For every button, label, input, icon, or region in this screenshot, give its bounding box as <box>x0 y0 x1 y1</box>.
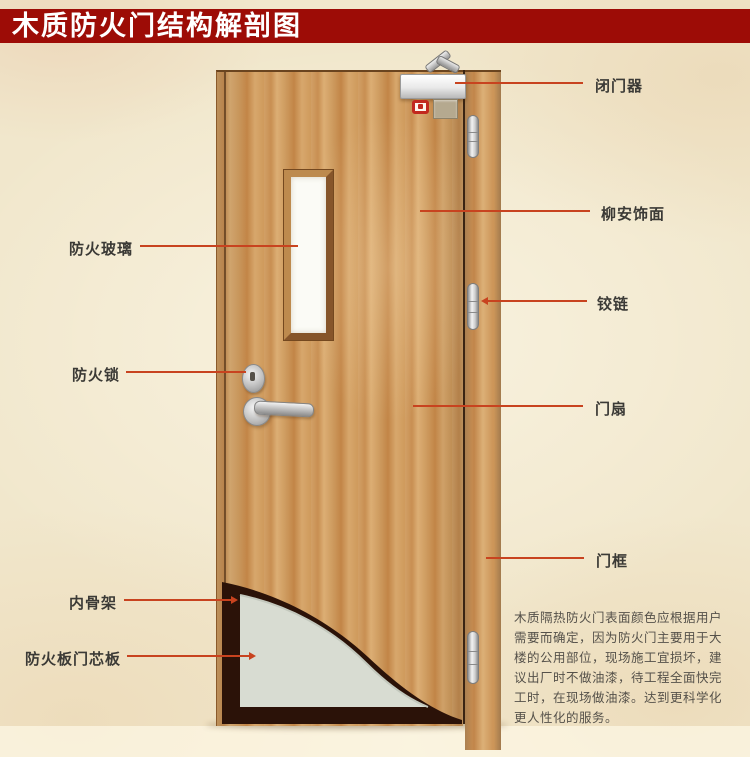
label-door-closer: 闭门器 <box>595 75 643 96</box>
arrow-icon <box>481 297 488 305</box>
hinge-bottom <box>467 631 479 684</box>
leader-line-hinge <box>488 300 587 302</box>
paragraph-line: 工时，在现场做油漆。达到更科学化 <box>514 688 732 708</box>
leader-line-inner-skeleton <box>124 599 232 601</box>
label-core-board: 防火板门芯板 <box>25 648 121 669</box>
hinge-middle <box>467 283 479 330</box>
arrow-icon <box>249 652 256 660</box>
label-door-frame: 门框 <box>596 550 628 571</box>
leader-line-door-closer <box>455 82 583 84</box>
alarm-indicator-dot <box>418 104 423 109</box>
keyhole <box>250 372 255 381</box>
paragraph-line: 需要而确定，因为防火门主要用于大 <box>514 628 732 648</box>
label-fire-glass: 防火玻璃 <box>69 238 133 259</box>
leader-line-veneer <box>420 210 590 212</box>
page-title: 木质防火门结构解剖图 <box>12 9 302 43</box>
leader-line-core-board <box>127 655 250 657</box>
label-door-leaf: 门扇 <box>595 398 627 419</box>
label-fire-lock: 防火锁 <box>72 364 120 385</box>
leader-line-fire-glass <box>140 245 298 247</box>
label-veneer: 柳安饰面 <box>601 203 665 224</box>
infographic-canvas: 木质防火门结构解剖图 防火玻璃 防火锁 内骨架 防火板门芯板 闭门器 柳安饰面 <box>0 0 750 757</box>
door-closer-body <box>400 74 466 99</box>
arrow-icon <box>231 596 238 604</box>
paragraph-line: 木质隔热防火门表面颜色应根据用户 <box>514 608 732 628</box>
leader-line-door-frame <box>486 557 584 559</box>
fire-glass-window <box>284 170 333 340</box>
paragraph-line: 更人性化的服务。 <box>514 708 732 728</box>
leader-line-fire-lock <box>126 371 246 373</box>
cutaway-section <box>216 575 462 724</box>
floor-band <box>0 726 750 757</box>
label-hinge: 铰链 <box>597 293 629 314</box>
mounting-plate <box>433 99 458 119</box>
paragraph-line: 议出厂时不做油漆，待工程全面快完 <box>514 668 732 688</box>
hinge-top <box>467 115 479 158</box>
label-inner-skeleton: 内骨架 <box>69 592 117 613</box>
leader-line-door-leaf <box>413 405 583 407</box>
description-paragraph: 木质隔热防火门表面颜色应根据用户 需要而确定，因为防火门主要用于大 楼的公用部位… <box>514 608 732 728</box>
paragraph-line: 楼的公用部位，现场施工宜损坏，建 <box>514 648 732 668</box>
